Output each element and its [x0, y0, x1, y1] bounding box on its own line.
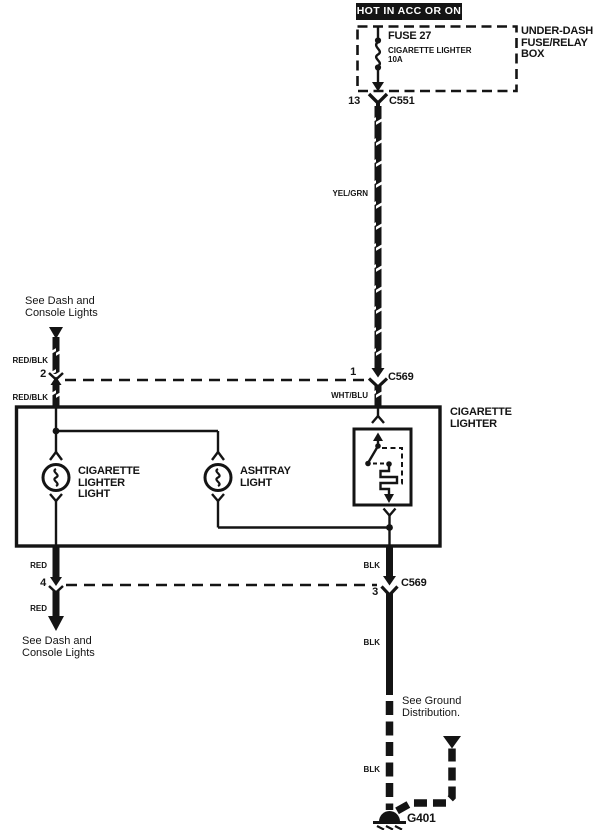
wht-blu-wire-label: WHT/BLU [312, 391, 368, 400]
c569-top-pin1-label: 1 [340, 367, 356, 379]
lighter-element-icon [354, 408, 411, 546]
red-blk-lower-label: RED/BLK [8, 393, 48, 402]
fuse-relay-box-label: UNDER-DASH FUSE/RELAY BOX [521, 26, 593, 61]
ground-name-label: G401 [407, 812, 436, 824]
blk-label-3: BLK [350, 765, 380, 774]
c569-top-pin2-label: 2 [30, 369, 46, 381]
fuse-relay-box-outline [358, 27, 517, 92]
see-dash-top-note: See Dash and Console Lights [25, 296, 98, 319]
wire-wht-blu [375, 386, 382, 407]
wiring-diagram: HOT IN ACC OR ON UNDER-DASH FUSE/RELAY B… [0, 0, 607, 830]
ground-branch-arrow [395, 736, 461, 812]
wire-red-blk-upper [53, 337, 60, 374]
connector-c569-pin1-icon [369, 368, 387, 387]
wire-red-blk-lower [53, 382, 60, 407]
fuse-name-label: FUSE 27 [388, 31, 431, 43]
c551-name-label: C551 [389, 96, 415, 108]
ashtray-light-label: ASHTRAY LIGHT [240, 466, 291, 489]
wire-red-run [48, 546, 64, 631]
red-upper-label: RED [17, 561, 47, 570]
fuse-rating-label: 10A [388, 55, 403, 64]
cigarette-lighter-light-bulb-icon [43, 452, 69, 501]
red-lower-label: RED [17, 604, 47, 613]
ground-icon [373, 811, 406, 830]
component-name-label: CIGARETTE LIGHTER [450, 407, 512, 430]
c569-bottom-name-label: C569 [401, 578, 427, 590]
red-blk-upper-label: RED/BLK [8, 356, 48, 365]
cigarette-lighter-light-label: CIGARETTE LIGHTER LIGHT [78, 466, 140, 501]
wire-blk-run [382, 546, 398, 810]
blk-label-1: BLK [350, 561, 380, 570]
see-ground-note: See Ground Distribution. [402, 696, 461, 719]
fuse-icon [372, 27, 384, 92]
c551-pin-label: 13 [340, 96, 360, 108]
yel-grn-wire-label: YEL/GRN [312, 189, 368, 198]
see-dash-bottom-note: See Dash and Console Lights [22, 636, 95, 659]
power-source-label: HOT IN ACC OR ON [356, 3, 462, 20]
c569-top-name-label: C569 [388, 372, 414, 384]
wire-yel-grn [375, 106, 382, 368]
c569-bottom-pin4-label: 4 [30, 578, 46, 590]
diagram-artwork [0, 0, 607, 830]
blk-label-2: BLK [350, 638, 380, 647]
ashtray-light-bulb-icon [205, 452, 231, 501]
connector-c551-icon [369, 94, 387, 108]
c569-bottom-pin3-label: 3 [362, 587, 378, 599]
